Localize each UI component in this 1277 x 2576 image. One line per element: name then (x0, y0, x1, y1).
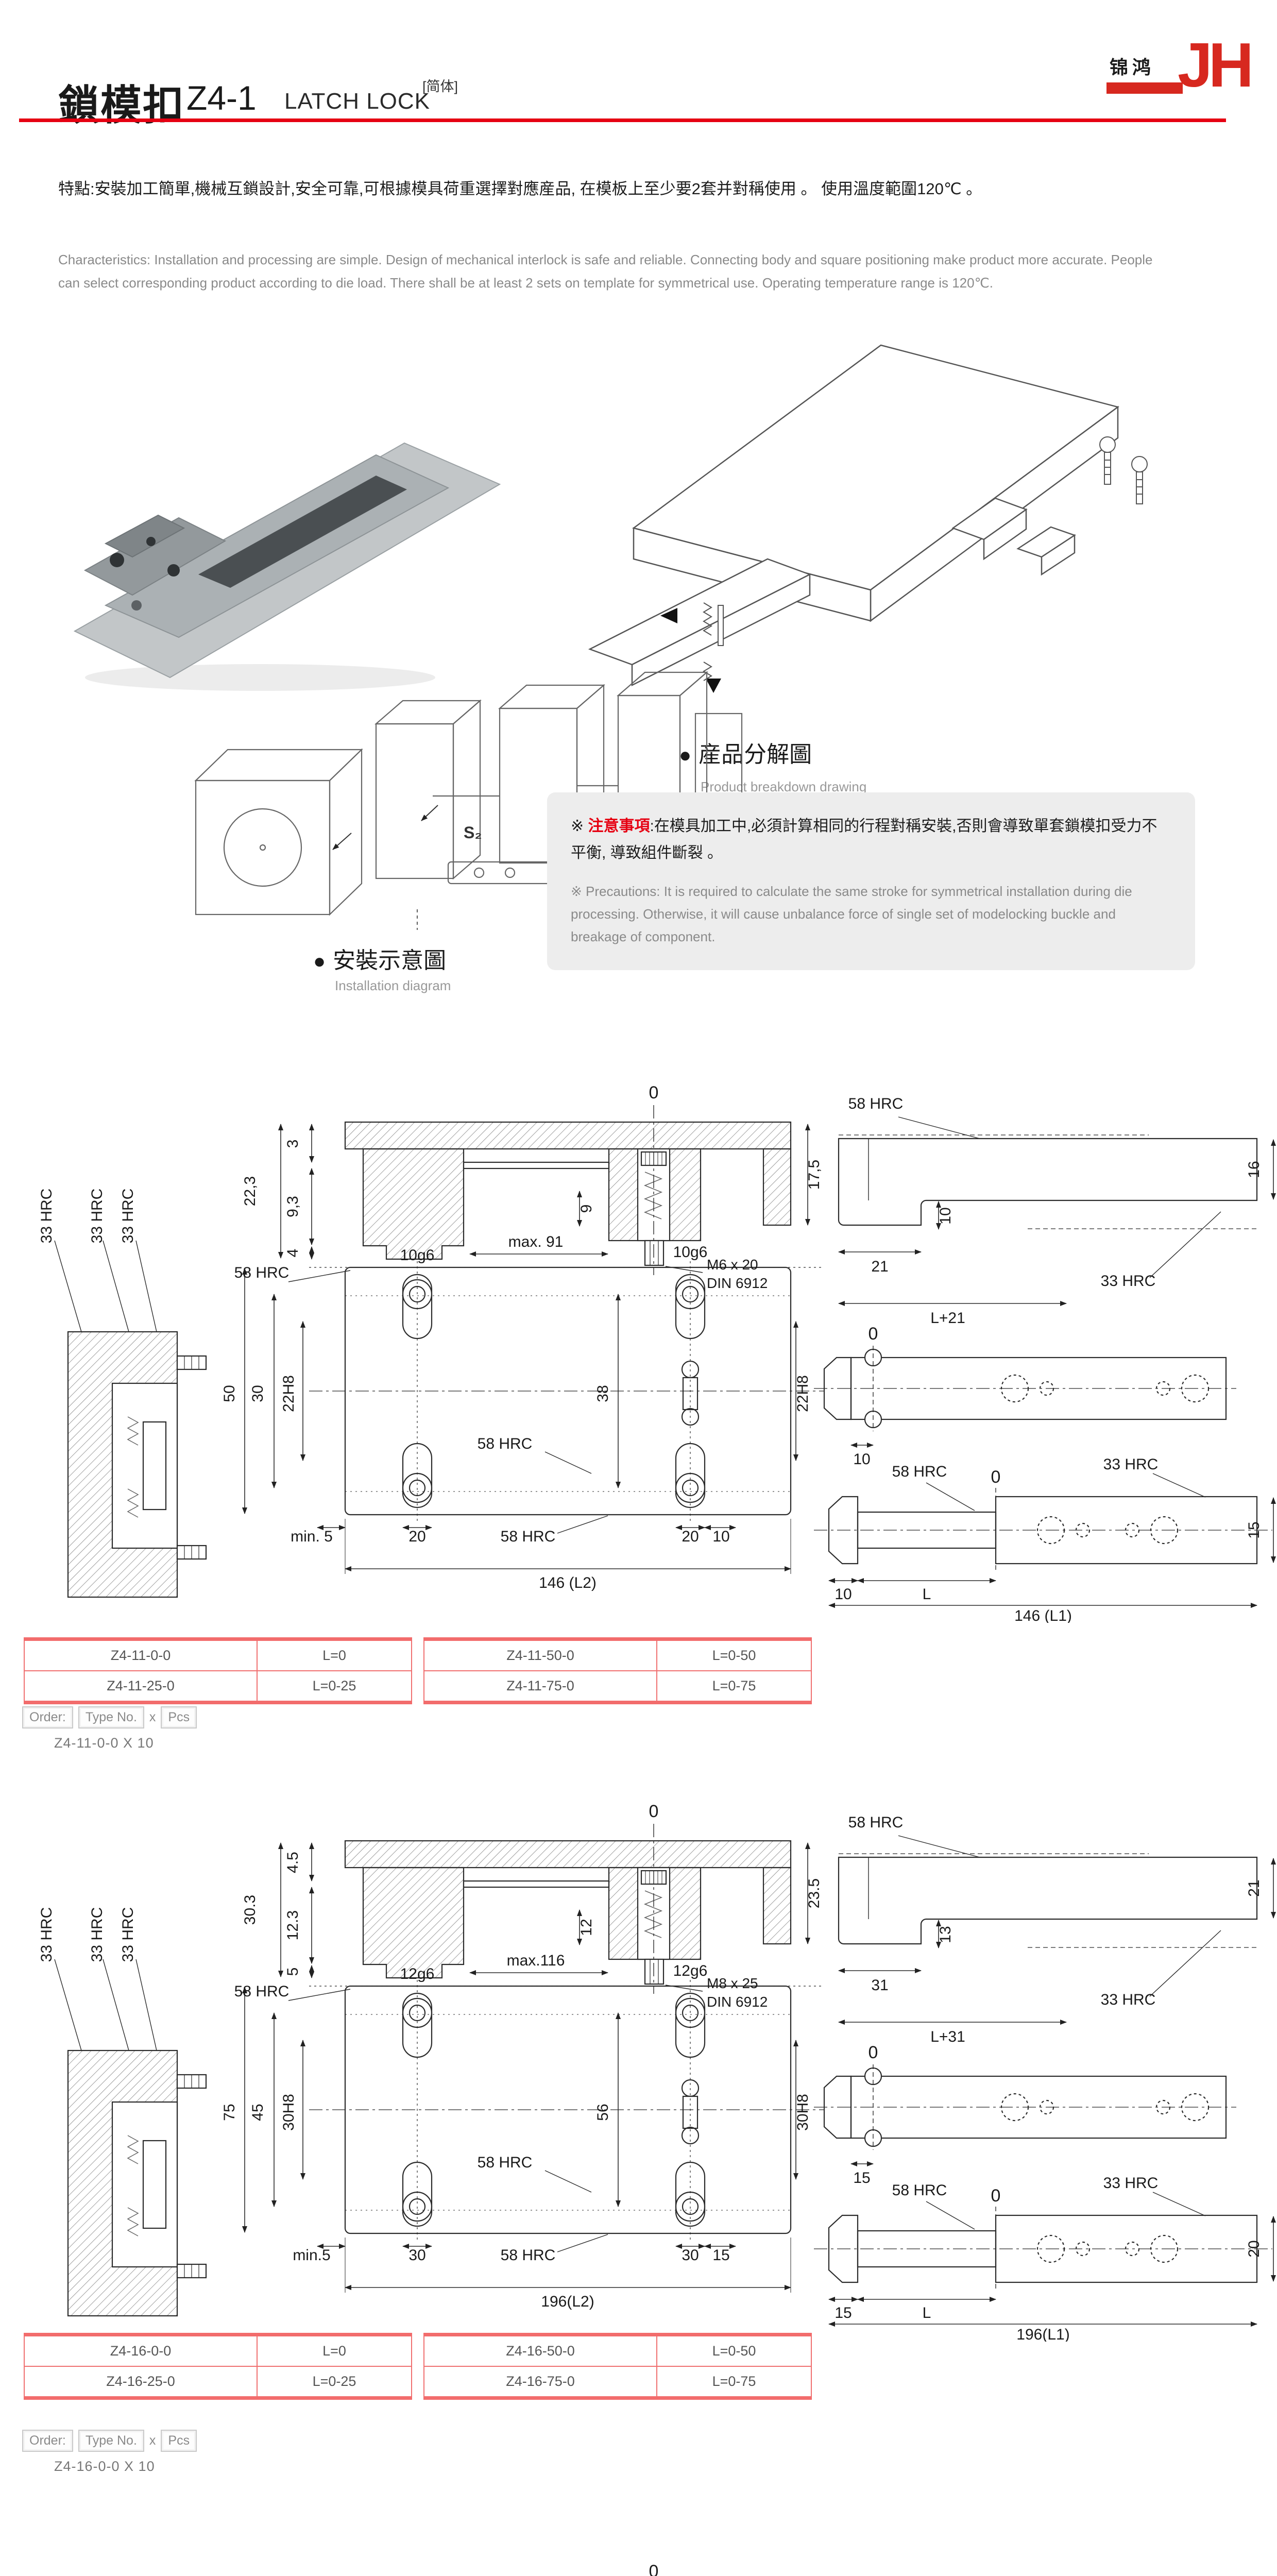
dim-label-slot_left: 10g6 (400, 1247, 435, 1264)
dim-label-sec_right: 17,5 (806, 1160, 823, 1190)
dim-label-sec_total: 22,3 (242, 1176, 259, 1206)
dim-label-plan_min: min.5 (293, 2247, 330, 2264)
dim-label-bar1_left: 10 (853, 1451, 870, 1468)
dim-label-side_total: L+31 (930, 2028, 965, 2045)
dim-label-side_hrc33: 33 HRC (1101, 1991, 1156, 2008)
dim-label-bar2_total: 146 (L1) (1014, 1607, 1072, 1623)
length-cell: L=0-25 (257, 2366, 412, 2398)
length-cell: L=0-50 (657, 1639, 811, 1671)
length-cell: L=0-25 (257, 1671, 412, 1703)
table-row: Z4-16-0-0L=0 (24, 2335, 412, 2367)
dim-label-side_left: 21 (871, 1258, 888, 1275)
page-title-en: LATCH LOCK (284, 89, 430, 114)
dim-label-bar1_zero: 0 (869, 1324, 878, 1344)
dim-label-sec_mid: 9,3 (284, 1196, 301, 1217)
precaution-mark: ※ (571, 818, 588, 835)
dim-label-plan_hrc58_mid: 58 HRC (478, 2154, 533, 2171)
length-cell: L=0 (257, 2335, 412, 2367)
dim-label-sec_max: max. 91 (508, 1233, 564, 1250)
table-row: Z4-11-0-0L=0 (24, 1639, 412, 1671)
language-tag: [简体] (422, 75, 458, 95)
length-cell: L=0 (257, 1639, 412, 1671)
technical-drawing-svg: 33 HRC33 HRC33 HRC022,339,34max. 91917,5… (21, 1061, 1277, 1623)
dim-label-hrc33_b: 33 HRC (89, 1907, 106, 1962)
dim-label-side_hrc58: 58 HRC (848, 1814, 904, 1831)
logo-cn-text: 锦鸿 (1110, 53, 1155, 79)
dim-label-plan_h5: 22H8 (794, 1375, 811, 1412)
dim-label-bar2_hrc58: 58 HRC (892, 2182, 947, 2199)
dim-label-sec_right: 23.5 (806, 1878, 823, 1908)
order-legend: Order:Type No.xPcs (22, 1706, 202, 1728)
precaution-highlight: 注意事項 (588, 818, 650, 835)
type-no-cell: Z4-11-75-0 (424, 1671, 657, 1703)
dim-label-screw1: M8 x 25 (707, 1975, 758, 1991)
table-row: Z4-16-25-0L=0-25 (24, 2366, 412, 2398)
dim-label-screw2: DIN 6912 (707, 1275, 768, 1291)
dim-label-sec_depth: 12 (578, 1919, 595, 1936)
dim-label-plan_h1: 75 (221, 2104, 238, 2121)
dim-label-bar2_zero: 0 (991, 2186, 1001, 2206)
dim-label-plan_hrc58_top: 58 HRC (234, 1983, 290, 2000)
dim-label-plan_total: 146 (L2) (539, 1574, 597, 1591)
dim-label-sec_max: max.116 (507, 1952, 565, 1969)
type-no-cell: Z4-16-25-0 (24, 2366, 257, 2398)
intro-paragraph-en: Characteristics: Installation and proces… (58, 248, 1171, 295)
dim-label-plan_h3: 30H8 (280, 2094, 297, 2131)
dim-label-bar2_len: L (923, 1586, 931, 1603)
intro-paragraph-cn: 特點:安裝加工簡單,機械互鎖設計,安全可靠,可根據模具荷重選擇對應産品, 在模板… (58, 170, 1217, 208)
dim-label-side_h: 21 (1246, 1879, 1263, 1896)
technical-drawing-svg: 33 HRC33 HRC33 HRC030.34.512.35max.11612… (21, 1780, 1277, 2342)
dim-label-side_left: 31 (871, 1977, 888, 1994)
dim-label-plan_min: min. 5 (291, 1528, 333, 1545)
bullet-icon: ● (313, 950, 326, 973)
dim-label-plan_hrc58_top: 58 HRC (234, 1264, 290, 1281)
type-no-cell: Z4-16-50-0 (424, 2335, 657, 2367)
dim-label-plan_w1: 30 (408, 2247, 425, 2264)
installation-label-en: Installation diagram (335, 978, 451, 994)
type-no-cell: Z4-11-25-0 (24, 1671, 257, 1703)
dim-label-plan_h5: 30H8 (794, 2094, 811, 2131)
dim-label-sec_bot: 4 (284, 1249, 301, 1258)
dim-label-screw2: DIN 6912 (707, 1994, 768, 2010)
table-row: Z4-16-50-0L=0-50 (424, 2335, 811, 2367)
dim-label-slot_right: 10g6 (673, 1244, 708, 1261)
length-cell: L=0-75 (657, 2366, 811, 2398)
dim-label-plan_hrc58_mid: 58 HRC (478, 1435, 533, 1452)
type-no-label: Type No. (78, 2430, 144, 2452)
dim-label-bar2_total: 196(L1) (1016, 2326, 1069, 2342)
dim-label-side_hrc58: 58 HRC (848, 1095, 904, 1112)
dim-label-sec_top: 4.5 (284, 1852, 301, 1873)
dim-label-slot_right: 12g6 (673, 1962, 708, 1979)
table-row: Z4-11-25-0L=0-25 (24, 1671, 412, 1703)
dim-s2-label: S₂ (464, 823, 482, 842)
type-no-cell: Z4-11-0-0 (24, 1639, 257, 1671)
dim-label-bar2_hrc33: 33 HRC (1103, 1456, 1159, 1473)
dim-label-side_h: 16 (1246, 1161, 1263, 1178)
dim-label-sec_zero: 0 (649, 1802, 659, 1821)
dim-label-hrc33_c: 33 HRC (120, 1189, 137, 1244)
precaution-text-en: ※ Precautions: It is required to calcula… (571, 880, 1171, 948)
dim-label-hrc33_a: 33 HRC (38, 1189, 55, 1244)
dim-label-sec_depth: 9 (578, 1205, 595, 1213)
precaution-text-cn: ※ 注意事項:在模具加工中,必須計算相同的行程對稱安裝,否則會導致單套鎖模扣受力… (571, 813, 1171, 867)
dim-label-bar2_h: 20 (1246, 2240, 1263, 2257)
type-no-cell: Z4-16-0-0 (24, 2335, 257, 2367)
dim-label-bar1_left: 15 (853, 2170, 870, 2187)
dim-label-plan_w3: 10 (712, 1528, 729, 1545)
company-logo: 锦鸿 JH (1106, 37, 1261, 122)
dim-label-plan_h3: 22H8 (280, 1375, 297, 1412)
dim-label-bar2_zero: 0 (991, 1467, 1001, 1487)
technical-drawing-z4-16: 33 HRC33 HRC33 HRC030.34.512.35max.11612… (21, 1780, 1277, 2342)
technical-drawing-svg: 33 HRC33 HRC33 HRC037.5615.56max.1541529… (21, 2540, 1277, 2576)
dim-label-hrc33_a: 33 HRC (38, 1907, 55, 1962)
page-title-cn: 鎖模扣 (58, 72, 185, 132)
dim-label-sec_bot: 5 (284, 1968, 301, 1976)
table-row: Z4-11-50-0L=0-50 (424, 1639, 811, 1671)
dim-label-bar2_hrc33: 33 HRC (1103, 2175, 1159, 2192)
table-row: Z4-16-75-0L=0-75 (424, 2366, 811, 2398)
dim-label-bar2_h: 15 (1246, 1521, 1263, 1538)
part-table-z4-11-left: Z4-11-0-0L=0 Z4-11-25-0L=0-25 (24, 1637, 412, 1704)
order-legend: Order:Type No.xPcs (22, 2430, 202, 2452)
dim-label-side_hrc58: 58 HRC (848, 2574, 904, 2576)
type-no-cell: Z4-11-50-0 (424, 1639, 657, 1671)
order-label: Order: (22, 2430, 73, 2452)
dim-label-plan_h4: 38 (594, 1385, 611, 1402)
header-divider (19, 118, 1226, 122)
dim-label-plan_h1: 50 (221, 1385, 238, 1402)
logo-jh-mark: JH (1178, 29, 1250, 101)
dim-label-side_hrc33: 33 HRC (1101, 1273, 1156, 1290)
dim-label-screw1: M6 x 20 (707, 1257, 758, 1273)
installation-label: ●安裝示意圖 (313, 942, 446, 975)
pcs-label: Pcs (161, 1706, 197, 1728)
technical-drawing-z4-11: 33 HRC33 HRC33 HRC022,339,34max. 91917,5… (21, 1061, 1277, 1623)
order-example: Z4-11-0-0 X 10 (54, 1735, 154, 1751)
length-cell: L=0-50 (657, 2335, 811, 2367)
table-row: Z4-11-75-0L=0-75 (424, 1671, 811, 1703)
type-no-cell: Z4-16-75-0 (424, 2366, 657, 2398)
precaution-box: ※ 注意事項:在模具加工中,必須計算相同的行程對稱安裝,否則會導致單套鎖模扣受力… (547, 792, 1195, 970)
times-label: x (149, 2433, 156, 2448)
part-table-z4-16-left: Z4-16-0-0L=0 Z4-16-25-0L=0-25 (24, 2333, 412, 2400)
dim-label-bar1_zero: 0 (869, 2043, 878, 2062)
dim-label-hrc33_c: 33 HRC (120, 1907, 137, 1962)
dim-label-sec_zero: 0 (649, 2562, 659, 2576)
dim-label-bar2_left: 10 (835, 1586, 852, 1603)
logo-bar (1106, 82, 1183, 94)
dim-label-slot_left: 12g6 (400, 1965, 435, 1982)
part-table-z4-11-right: Z4-11-50-0L=0-50 Z4-11-75-0L=0-75 (423, 1637, 812, 1704)
installation-label-cn: 安裝示意圖 (333, 948, 446, 973)
dim-label-sec_mid: 12.3 (284, 1910, 301, 1940)
dim-label-bar2_len: L (923, 2304, 931, 2321)
dim-label-plan_h2: 45 (249, 2104, 266, 2121)
precaution-rest: :在模具加工中,必須計算相同的行程對稱安裝,否則會導致單套鎖模扣受力不平衡, 導… (571, 818, 1157, 861)
dim-label-plan_hrc58_bot: 58 HRC (501, 1528, 556, 1545)
times-label: x (149, 1710, 156, 1724)
dim-label-plan_h2: 30 (249, 1385, 266, 1402)
dim-label-plan_total: 196(L2) (541, 2293, 594, 2310)
dim-label-hrc33_b: 33 HRC (89, 1189, 106, 1244)
order-label: Order: (22, 1706, 73, 1728)
order-example: Z4-16-0-0 X 10 (54, 2459, 155, 2475)
dim-label-plan_w1: 20 (408, 1528, 425, 1545)
dim-label-plan_w3: 15 (712, 2247, 729, 2264)
dim-label-bar2_hrc58: 58 HRC (892, 1463, 947, 1480)
dim-label-plan_h4: 56 (594, 2104, 611, 2121)
pcs-label: Pcs (161, 2430, 197, 2452)
dim-label-plan_w2: 20 (682, 1528, 699, 1545)
dim-label-side_total: L+21 (930, 1310, 965, 1327)
dim-label-side_step: 10 (937, 1207, 954, 1224)
dim-label-bar2_left: 15 (835, 2304, 852, 2321)
dim-label-sec_total: 30.3 (242, 1895, 259, 1925)
page-title-model: Z4-1 (186, 78, 257, 117)
technical-drawing-z4-21: 33 HRC33 HRC33 HRC037.5615.56max.1541529… (21, 2540, 1277, 2576)
dim-label-plan_w2: 30 (682, 2247, 699, 2264)
dim-label-sec_top: 3 (284, 1140, 301, 1148)
type-no-label: Type No. (78, 1706, 144, 1728)
dim-label-plan_hrc58_bot: 58 HRC (501, 2247, 556, 2264)
length-cell: L=0-75 (657, 1671, 811, 1703)
dim-label-sec_zero: 0 (649, 1083, 659, 1103)
dim-label-side_step: 13 (937, 1926, 954, 1943)
part-table-z4-16-right: Z4-16-50-0L=0-50 Z4-16-75-0L=0-75 (423, 2333, 812, 2400)
